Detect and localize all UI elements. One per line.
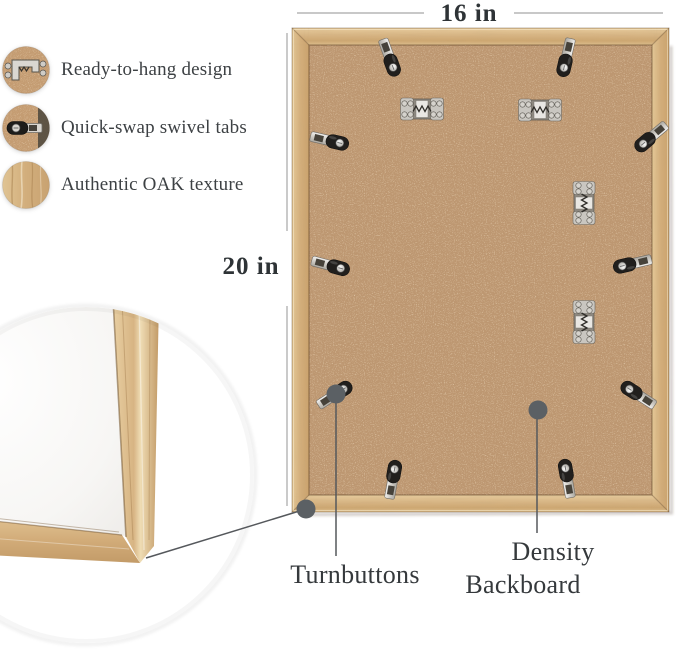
swivel-tab-icon — [2, 104, 50, 152]
sawtooth-hanger — [401, 98, 444, 120]
width-dimension-label: 16 in — [440, 0, 497, 28]
picture-frame-back — [292, 28, 672, 515]
sawtooth-hanger — [573, 301, 595, 344]
corner-annotation-dot — [297, 500, 316, 519]
corner-detail-circle — [0, 296, 280, 652]
turnbuttons-annotation-dot — [327, 385, 346, 404]
feature-label: Authentic OAK texture — [61, 174, 244, 196]
product-infographic: 16 in 20 in Ready-to-hang design — [0, 0, 679, 652]
backboard-label-line1: Density — [512, 537, 595, 567]
feature-label: Quick-swap swivel tabs — [61, 117, 247, 139]
feature-ready-to-hang: Ready-to-hang design — [2, 46, 232, 94]
sawtooth-hanger — [573, 182, 595, 225]
backboard — [309, 45, 652, 495]
turnbuttons-label: Turnbuttons — [290, 560, 420, 590]
height-dimension-label: 20 in — [222, 253, 279, 281]
feature-label: Ready-to-hang design — [61, 59, 232, 81]
sawtooth-hanger-icon — [2, 46, 50, 94]
canvas-front — [0, 296, 126, 536]
oak-texture-icon — [2, 161, 50, 209]
backboard-annotation-dot — [529, 401, 548, 420]
backboard-label-line2: Backboard — [465, 570, 580, 600]
feature-swivel-tabs: Quick-swap swivel tabs — [2, 104, 247, 152]
feature-oak-texture: Authentic OAK texture — [2, 161, 244, 209]
sawtooth-hanger — [519, 99, 562, 121]
